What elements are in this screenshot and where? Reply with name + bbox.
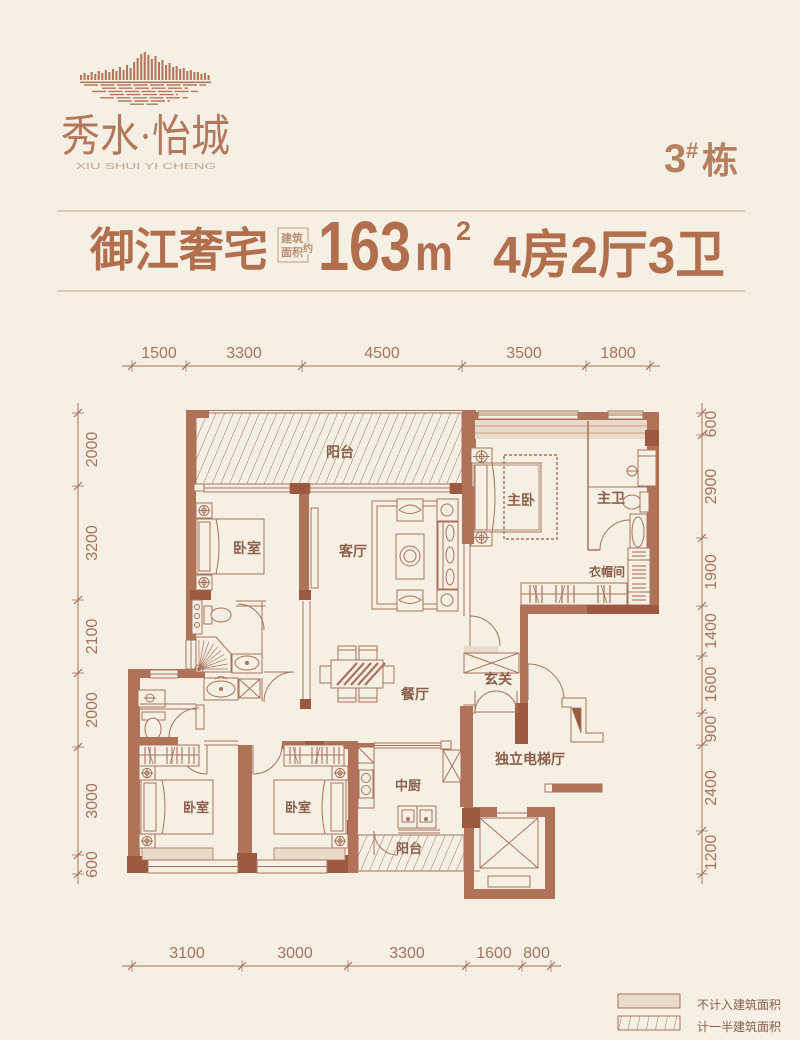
- svg-text:1600: 1600: [476, 945, 512, 962]
- svg-text:600: 600: [84, 851, 101, 878]
- svg-text:1400: 1400: [703, 613, 720, 649]
- svg-text:2000: 2000: [84, 692, 101, 728]
- svg-text:卧室: 卧室: [183, 800, 209, 815]
- svg-text:卧室: 卧室: [233, 540, 261, 556]
- svg-text:客厅: 客厅: [338, 543, 367, 559]
- svg-text:800: 800: [523, 945, 550, 962]
- svg-text:面积: 面积: [281, 245, 303, 259]
- svg-text:3500: 3500: [506, 345, 542, 362]
- svg-text:独立电梯厅: 独立电梯厅: [495, 751, 565, 767]
- svg-text:1500: 1500: [141, 345, 177, 362]
- svg-text:约: 约: [303, 242, 313, 255]
- svg-text:3000: 3000: [84, 783, 101, 819]
- svg-text:3000: 3000: [277, 945, 313, 962]
- svg-text:衣帽间: 衣帽间: [589, 564, 625, 579]
- svg-text:阳台: 阳台: [326, 444, 354, 460]
- svg-text:XIU SHUI YI CHENG: XIU SHUI YI CHENG: [76, 161, 216, 171]
- svg-text:2400: 2400: [703, 770, 720, 806]
- svg-text:玄关: 玄关: [484, 671, 512, 687]
- svg-text:主卫: 主卫: [597, 490, 625, 506]
- svg-text:2100: 2100: [84, 619, 101, 655]
- svg-text:2900: 2900: [703, 469, 720, 505]
- svg-text:163: 163: [318, 207, 411, 285]
- svg-text:4500: 4500: [364, 345, 400, 362]
- svg-text:栋: 栋: [702, 140, 738, 181]
- svg-text:3200: 3200: [84, 525, 101, 561]
- svg-text:2000: 2000: [84, 432, 101, 468]
- svg-text:建筑: 建筑: [281, 231, 303, 245]
- svg-text:m: m: [415, 225, 453, 281]
- svg-text:不计入建筑面积: 不计入建筑面积: [697, 997, 781, 1012]
- svg-text:御江奢宅: 御江奢宅: [89, 224, 268, 276]
- svg-text:600: 600: [703, 411, 720, 438]
- svg-text:3: 3: [664, 137, 686, 181]
- svg-text:计一半建筑面积: 计一半建筑面积: [697, 1019, 781, 1034]
- svg-text:卧室: 卧室: [285, 800, 311, 815]
- svg-text:餐厅: 餐厅: [400, 686, 429, 702]
- svg-text:1900: 1900: [703, 554, 720, 590]
- svg-text:秀水·怡城: 秀水·怡城: [61, 112, 230, 161]
- svg-text:1200: 1200: [703, 835, 720, 871]
- svg-text:3100: 3100: [169, 945, 205, 962]
- svg-text:4房2厅3卫: 4房2厅3卫: [493, 227, 725, 285]
- svg-text:中厨: 中厨: [395, 778, 421, 793]
- svg-text:1600: 1600: [703, 667, 720, 703]
- svg-text:3300: 3300: [389, 945, 425, 962]
- svg-text:1800: 1800: [600, 345, 636, 362]
- svg-text:阳台: 阳台: [396, 841, 422, 856]
- svg-text:主卧: 主卧: [507, 492, 535, 508]
- svg-text:#: #: [686, 138, 698, 163]
- svg-text:2: 2: [456, 216, 471, 246]
- svg-text:900: 900: [703, 716, 720, 743]
- svg-text:3300: 3300: [226, 345, 262, 362]
